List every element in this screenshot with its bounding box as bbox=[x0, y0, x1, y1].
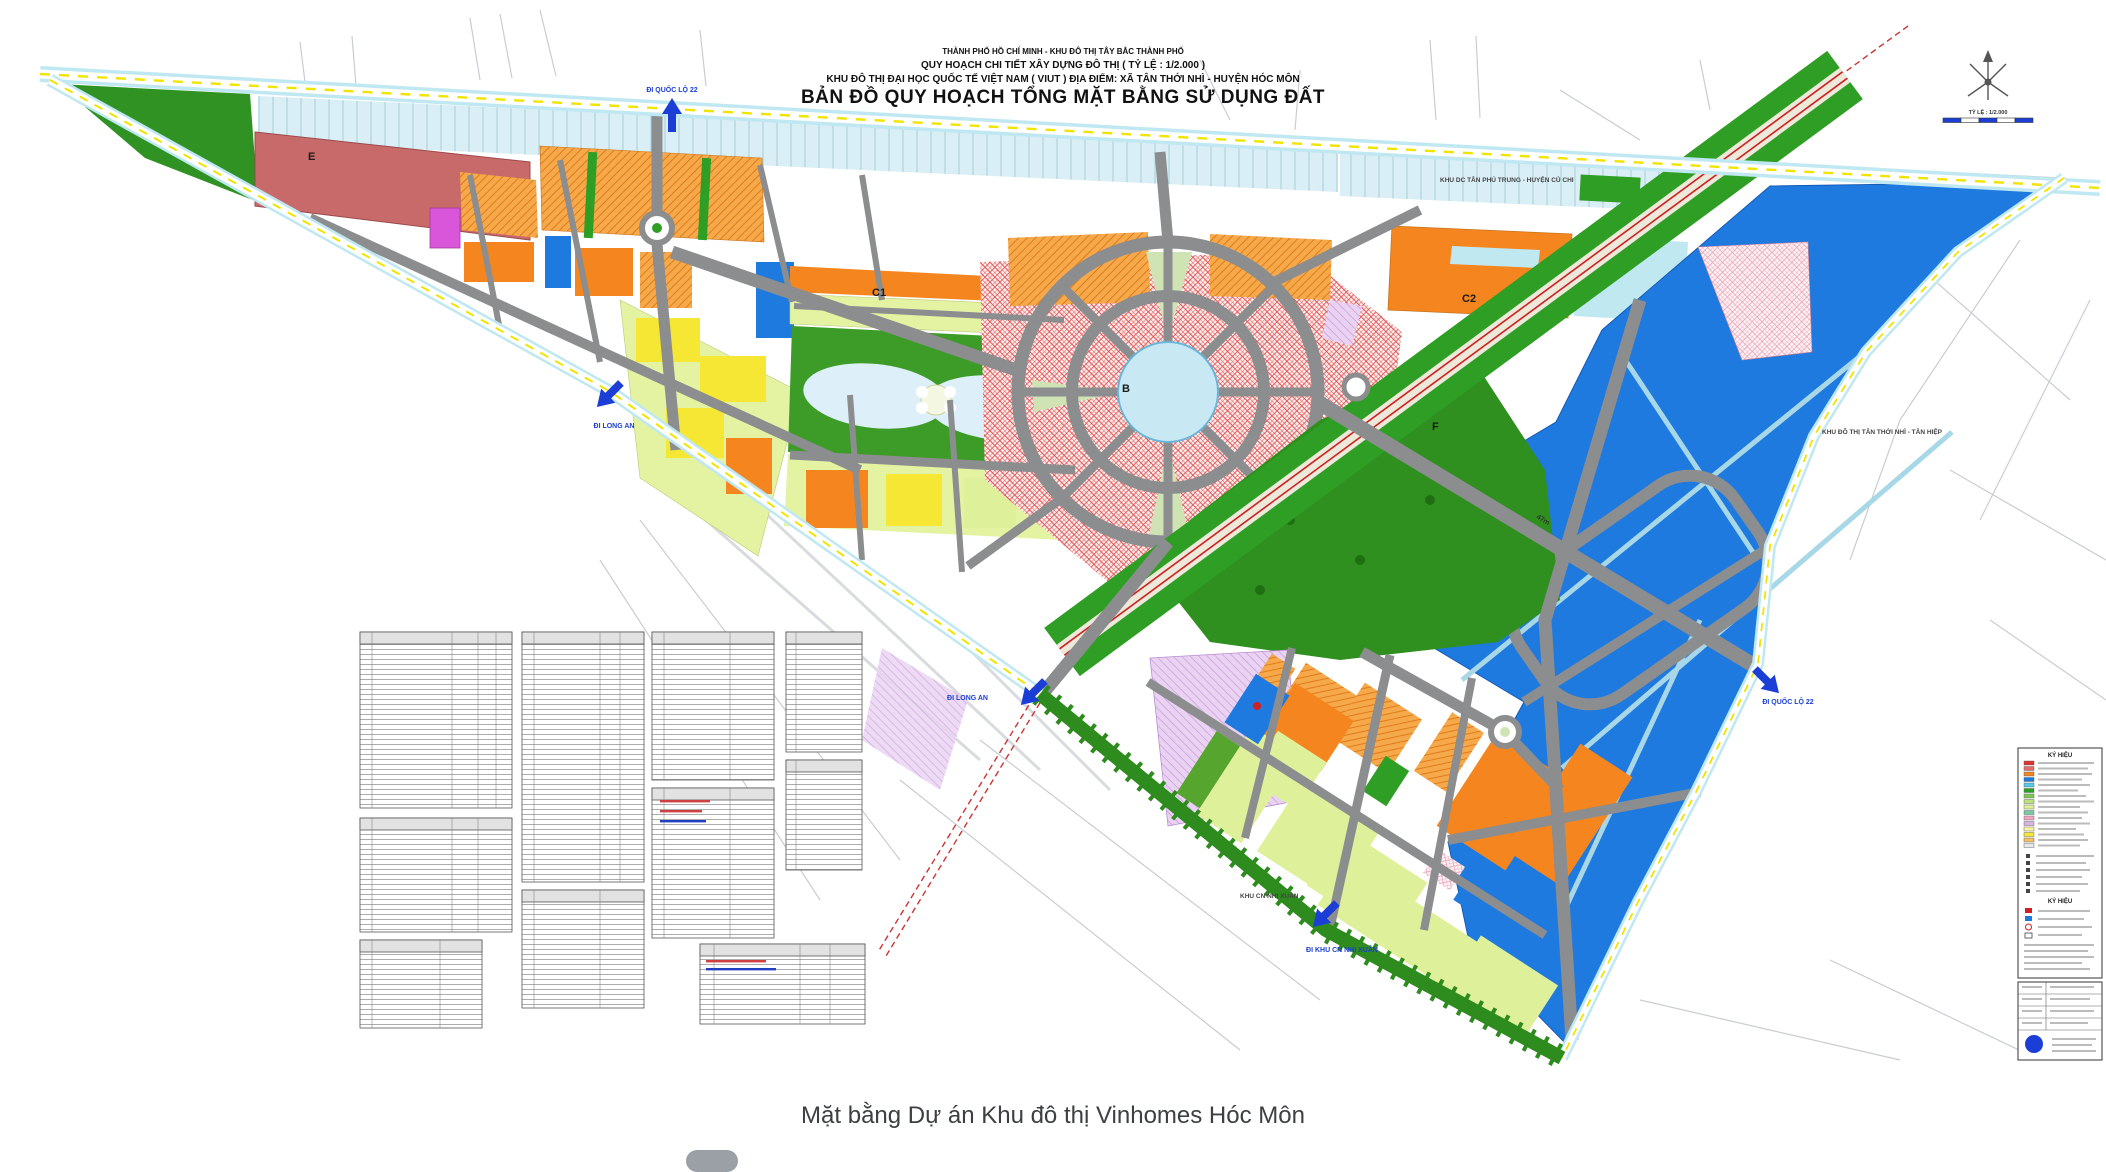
legend-swatch bbox=[2024, 783, 2034, 787]
legend-swatch bbox=[2024, 761, 2034, 765]
scrollbar-thumb[interactable] bbox=[686, 1150, 738, 1172]
zone-label-c1: C1 bbox=[872, 287, 886, 299]
legend-swatch bbox=[2024, 822, 2034, 826]
legend-swatch bbox=[2024, 827, 2034, 831]
title-line3: KHU ĐÔ THỊ ĐẠI HỌC QUỐC TẾ VIỆT NAM ( VI… bbox=[826, 71, 1299, 85]
table-block bbox=[360, 818, 512, 932]
label-khu-cn-nhi-xuan: KHU CN NHỊ XUÂN bbox=[1240, 891, 1299, 900]
arrow-label-south: ĐI KHU CN NHỊ XUÂN bbox=[1306, 945, 1378, 954]
signature-block bbox=[2018, 982, 2102, 1060]
land-use-tables bbox=[360, 632, 865, 1028]
title-line4: BẢN ĐỒ QUY HOẠCH TỔNG MẶT BẰNG SỬ DỤNG Đ… bbox=[801, 86, 1325, 108]
label-tan-thoi-nhi: KHU ĐÔ THỊ TÂN THỚI NHÌ - TÂN HIỆP bbox=[1822, 427, 1943, 436]
arrow-label-east: ĐI QUỐC LỘ 22 bbox=[1762, 696, 1813, 706]
arrow-label-south-center: ĐI LONG AN bbox=[947, 695, 988, 702]
legend-swatch bbox=[2024, 772, 2034, 776]
title-line1: THÀNH PHỐ HỒ CHÍ MINH - KHU ĐÔ THỊ TÂY B… bbox=[942, 46, 1184, 56]
legend-swatch bbox=[2024, 811, 2034, 815]
table-block bbox=[786, 632, 862, 752]
legend-swatch bbox=[2024, 844, 2034, 848]
arrow-label-west: ĐI LONG AN bbox=[594, 423, 635, 430]
legend-panel: KÝ HIỆU bbox=[2018, 748, 2102, 978]
table-block bbox=[652, 788, 774, 938]
legend-swatch bbox=[2024, 805, 2034, 809]
zone-label-b: B bbox=[1122, 383, 1130, 395]
zone-label-e: E bbox=[308, 151, 315, 163]
stamp-logo bbox=[2025, 1035, 2043, 1053]
title-line2: QUY HOẠCH CHI TIẾT XÂY DỰNG ĐÔ THỊ ( TỶ … bbox=[921, 58, 1205, 71]
north-compass-icon bbox=[1968, 50, 2008, 100]
legend-swatch bbox=[2024, 816, 2034, 820]
legend-header: KÝ HIỆU bbox=[2048, 751, 2072, 759]
table-block bbox=[700, 944, 865, 1024]
scale-bar: TỶ LỆ : 1/2.000 bbox=[1943, 108, 2033, 123]
table-block bbox=[360, 940, 482, 1028]
zone-label-c2: C2 bbox=[1462, 293, 1476, 305]
arrow-east-ql22: ĐI QUỐC LỘ 22 bbox=[1748, 662, 1814, 706]
map-title-block: THÀNH PHỐ HỒ CHÍ MINH - KHU ĐÔ THỊ TÂY B… bbox=[801, 46, 1325, 108]
legend-swatch bbox=[2024, 838, 2034, 842]
table-block bbox=[652, 632, 774, 780]
legend-swatch bbox=[2024, 778, 2034, 782]
table-block bbox=[522, 890, 644, 1008]
table-block bbox=[786, 760, 862, 870]
arrow-label-top: ĐI QUỐC LỘ 22 bbox=[646, 84, 697, 94]
table-block bbox=[522, 632, 644, 882]
legend-swatch bbox=[2024, 789, 2034, 793]
legend-header-2: KÝ HIỆU bbox=[2048, 897, 2072, 905]
master-plan-map: ĐI QUỐC LỘ 22 ĐI LONG AN ĐI LONG AN ĐI Q… bbox=[0, 0, 2106, 1070]
zone-label-f: F bbox=[1432, 421, 1439, 433]
scale-label: TỶ LỆ : 1/2.000 bbox=[1969, 108, 2008, 116]
table-block bbox=[360, 632, 512, 808]
label-tan-phu-trung: KHU DC TÂN PHÚ TRUNG - HUYỆN CỦ CHI bbox=[1440, 175, 1574, 184]
legend-swatch bbox=[2024, 767, 2034, 771]
image-caption: Mặt bằng Dự án Khu đô thị Vinhomes Hóc M… bbox=[0, 1102, 2106, 1130]
legend-swatch bbox=[2024, 794, 2034, 798]
legend-swatch bbox=[2024, 800, 2034, 804]
legend-swatch bbox=[2024, 833, 2034, 837]
